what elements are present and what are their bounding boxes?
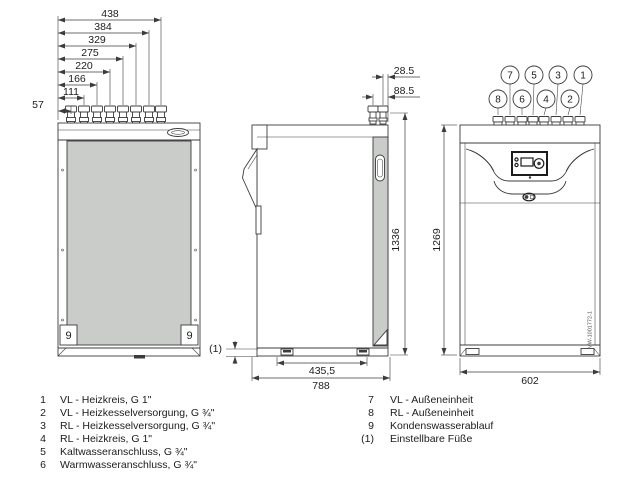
pipe-stub bbox=[156, 106, 167, 123]
pipe-stub bbox=[517, 117, 527, 126]
legend-num: 8 bbox=[368, 407, 374, 419]
side-handle-grip bbox=[256, 206, 261, 234]
pipe-stub bbox=[528, 117, 538, 126]
legend-num: 6 bbox=[40, 459, 46, 471]
pipe-stub bbox=[118, 106, 129, 123]
drawing-number: MW-1001772-1 bbox=[588, 311, 594, 349]
dim-label-1336: 1336 bbox=[390, 228, 402, 252]
pipe-stub bbox=[505, 117, 515, 126]
legend-text: VL - Außeneinheit bbox=[390, 394, 473, 406]
pipe-stub bbox=[575, 117, 585, 126]
callout-6: 6 bbox=[519, 95, 525, 106]
legend-num: 5 bbox=[40, 446, 46, 458]
legend-text: RL - Heizkreis, G 1" bbox=[60, 433, 152, 445]
callout-1: 1 bbox=[580, 71, 586, 82]
panel-mark bbox=[529, 176, 531, 178]
rear-handle-oval bbox=[168, 129, 189, 137]
adjustable-feet-note: (1) bbox=[209, 343, 222, 355]
dim-label-329: 329 bbox=[88, 34, 106, 46]
legend-item: 9 Kondenswasserablauf bbox=[368, 420, 493, 432]
dim-label-88-5: 88.5 bbox=[394, 85, 415, 97]
corner-label-9-right: 9 bbox=[186, 330, 192, 342]
legend-num: 2 bbox=[40, 407, 46, 419]
legend-text: Kaltwasseranschluss, G ¾" bbox=[60, 446, 188, 458]
dim-label-57: 57 bbox=[32, 99, 44, 111]
pipe-stub bbox=[105, 106, 116, 123]
dim-label-1269: 1269 bbox=[431, 228, 443, 252]
dim-label-220: 220 bbox=[75, 60, 93, 72]
rear-view: 9 9 438 384 329 275 2 bbox=[32, 8, 200, 359]
dim-label-435-5: 435,5 bbox=[309, 365, 335, 377]
legend-item: 5 Kaltwasseranschluss, G ¾" bbox=[40, 446, 188, 458]
legend-num: 7 bbox=[368, 394, 374, 406]
side-pipe-connections bbox=[368, 106, 388, 124]
legend-text: RL - Heizkesselversorgung, G ¾" bbox=[60, 420, 215, 432]
rear-pipe-connections bbox=[66, 106, 167, 123]
dim-label-28-5: 28.5 bbox=[394, 65, 415, 77]
callout-5: 5 bbox=[531, 71, 537, 82]
rear-drain-mark bbox=[134, 355, 145, 359]
legend-text: VL - Heizkreis, G 1" bbox=[60, 394, 152, 406]
pipe-stub bbox=[493, 117, 503, 126]
rear-grey-panel bbox=[67, 141, 191, 345]
control-knob-dot bbox=[537, 162, 541, 166]
corner-label-9-left: 9 bbox=[65, 330, 71, 342]
legend-num: 1 bbox=[40, 394, 46, 406]
page: 9 9 438 384 329 275 2 bbox=[0, 0, 640, 480]
legend-text: Warmwasseranschluss, G ¾" bbox=[60, 459, 197, 471]
front-view: 7 5 3 1 8 6 4 2 1269 602 MW-1001772-1 bbox=[431, 66, 600, 387]
side-body bbox=[257, 125, 388, 356]
legend-text: Einstellbare Füße bbox=[390, 433, 472, 445]
legend-text: RL - Außeneinheit bbox=[390, 407, 474, 419]
callout-7: 7 bbox=[507, 71, 513, 82]
callout-3: 3 bbox=[555, 71, 561, 82]
legend-text: Kondenswasserablauf bbox=[390, 420, 493, 432]
legend-text: VL - Heizkesselversorgung, G ¾" bbox=[60, 407, 215, 419]
side-view: 28.5 88.5 1336 435,5 788 (1) bbox=[209, 65, 420, 392]
dim-label-275: 275 bbox=[81, 47, 99, 59]
legend-item: 8 RL - Außeneinheit bbox=[368, 407, 474, 419]
pipe-stub bbox=[368, 106, 378, 124]
dim-label-166: 166 bbox=[68, 73, 86, 85]
legend-item: 1 VL - Heizkreis, G 1" bbox=[40, 394, 152, 406]
callout-2: 2 bbox=[567, 95, 573, 106]
legend-num: 4 bbox=[40, 433, 46, 445]
legend-item: 3 RL - Heizkesselversorgung, G ¾" bbox=[40, 420, 215, 432]
legend: 1 VL - Heizkreis, G 1" 2 VL - Heizkessel… bbox=[40, 394, 493, 471]
legend-num: 3 bbox=[40, 420, 46, 432]
legend-item: 2 VL - Heizkesselversorgung, G ¾" bbox=[40, 407, 215, 419]
dim-label-111: 111 bbox=[63, 86, 79, 98]
legend-item: 4 RL - Heizkreis, G 1" bbox=[40, 433, 152, 445]
callout-circles: 7 5 3 1 8 6 4 2 bbox=[489, 66, 592, 108]
dim-label-438: 438 bbox=[101, 8, 119, 20]
legend-num: 9 bbox=[368, 420, 374, 432]
dim-label-602: 602 bbox=[521, 375, 539, 387]
pipe-stub bbox=[79, 106, 90, 123]
callout-8: 8 bbox=[495, 95, 501, 106]
pipe-stub bbox=[92, 106, 103, 123]
dim-label-788: 788 bbox=[312, 380, 330, 392]
control-panel bbox=[512, 152, 547, 179]
pipe-stub bbox=[563, 117, 573, 126]
pipe-stub bbox=[144, 106, 155, 123]
legend-item: (1) Einstellbare Füße bbox=[361, 433, 472, 445]
front-pipe-connections bbox=[493, 117, 585, 126]
technical-diagram: 9 9 438 384 329 275 2 bbox=[0, 0, 640, 480]
pipe-stub bbox=[378, 106, 388, 124]
dim-label-384: 384 bbox=[94, 21, 112, 33]
legend-item: 6 Warmwasseranschluss, G ¾" bbox=[40, 459, 197, 471]
pipe-stub bbox=[539, 117, 549, 126]
legend-num: (1) bbox=[361, 433, 374, 445]
legend-item: 7 VL - Außeneinheit bbox=[368, 394, 473, 406]
callout-4: 4 bbox=[543, 95, 549, 106]
pipe-stub bbox=[551, 117, 561, 126]
pipe-stub bbox=[131, 106, 142, 123]
